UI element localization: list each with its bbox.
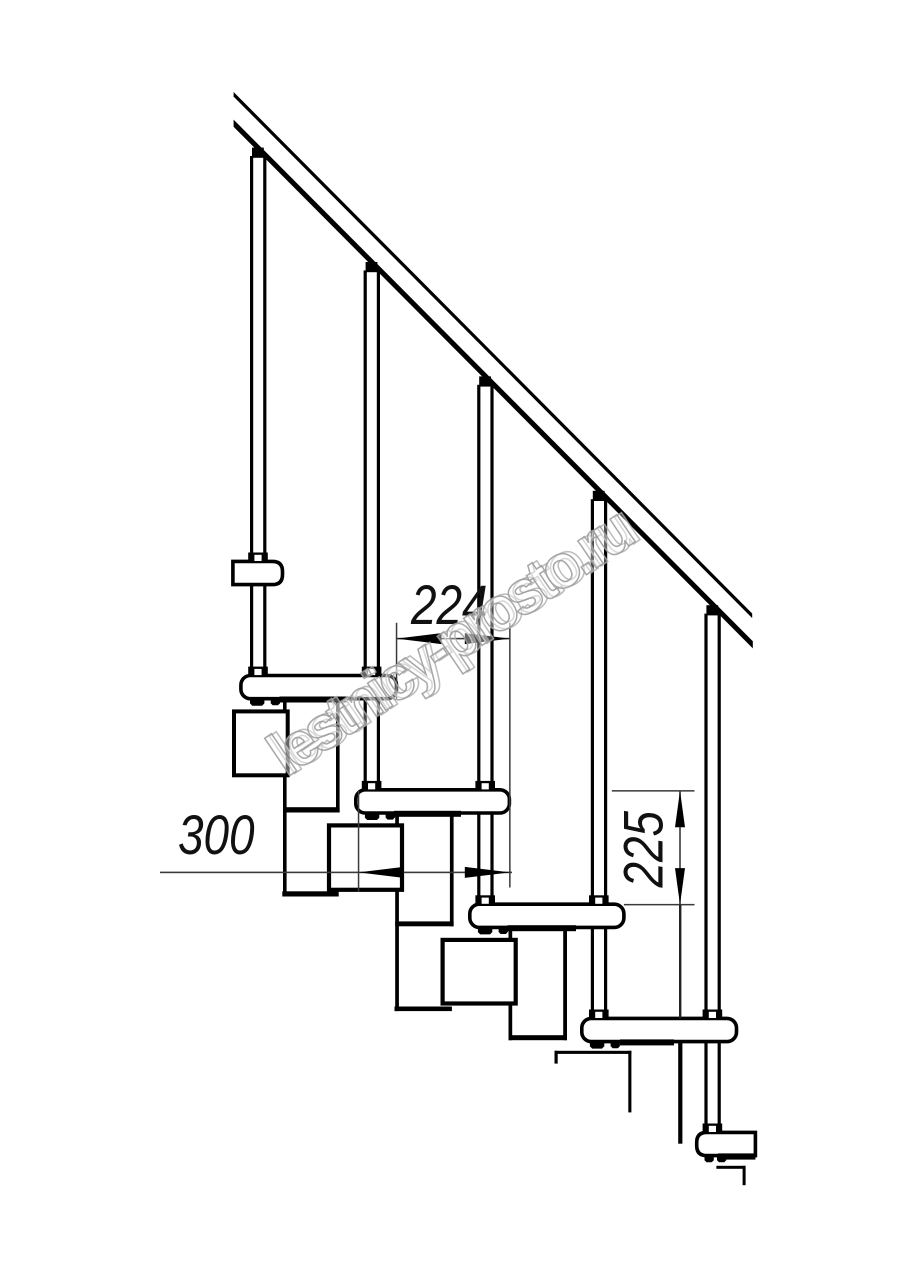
svg-text:lestnicy-prosto.ru: lestnicy-prosto.ru	[255, 495, 643, 789]
svg-text:225: 225	[612, 810, 674, 888]
svg-text:300: 300	[178, 804, 255, 866]
